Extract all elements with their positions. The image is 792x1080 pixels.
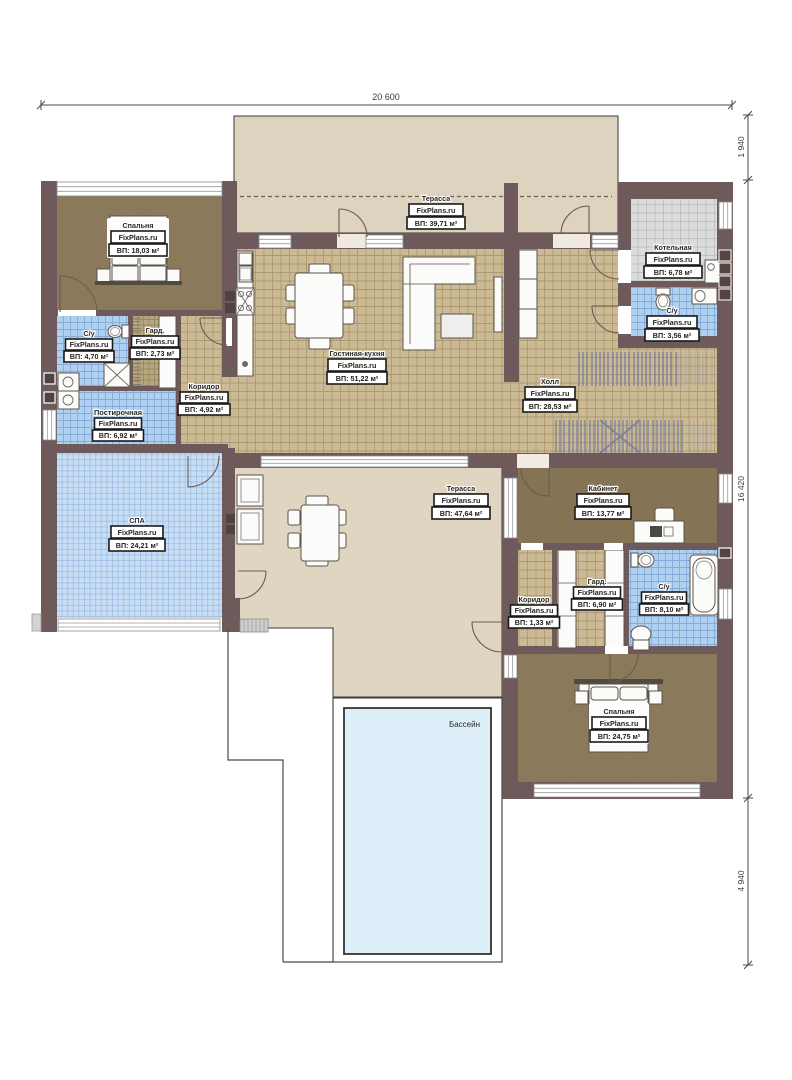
svg-text:С/у: С/у (658, 582, 669, 591)
svg-text:С/у: С/у (666, 306, 677, 315)
svg-text:Коридор: Коридор (189, 382, 221, 391)
svg-text:ВП: 13,77 м²: ВП: 13,77 м² (582, 509, 625, 518)
svg-text:4 940: 4 940 (736, 870, 746, 892)
svg-text:FixPlans.ru: FixPlans.ru (584, 496, 623, 505)
svg-text:Гард.: Гард. (146, 326, 165, 335)
svg-text:FixPlans.ru: FixPlans.ru (654, 255, 693, 264)
svg-text:ВП: 47,64 м²: ВП: 47,64 м² (440, 509, 483, 518)
svg-text:Терасса: Терасса (447, 484, 476, 493)
svg-text:FixPlans.ru: FixPlans.ru (185, 393, 224, 402)
svg-text:ВП: 24,75 м²: ВП: 24,75 м² (598, 732, 641, 741)
svg-text:Спальня: Спальня (603, 707, 634, 716)
svg-text:ВП: 6,78 м²: ВП: 6,78 м² (654, 268, 693, 277)
svg-text:ВП: 3,56 м²: ВП: 3,56 м² (653, 331, 692, 340)
svg-text:ВП: 24,21 м²: ВП: 24,21 м² (116, 541, 159, 550)
svg-text:1 940: 1 940 (736, 136, 746, 158)
svg-text:FixPlans.ru: FixPlans.ru (118, 528, 157, 537)
svg-text:16 420: 16 420 (736, 476, 746, 502)
svg-text:С/у: С/у (83, 329, 94, 338)
svg-text:Гард.: Гард. (588, 577, 607, 586)
svg-text:FixPlans.ru: FixPlans.ru (442, 496, 481, 505)
svg-text:Терасса: Терасса (422, 194, 451, 203)
svg-text:FixPlans.ru: FixPlans.ru (417, 206, 456, 215)
svg-text:ВП: 6,90 м²: ВП: 6,90 м² (578, 600, 617, 609)
svg-text:Постирочная: Постирочная (94, 408, 142, 417)
svg-text:FixPlans.ru: FixPlans.ru (338, 361, 377, 370)
svg-text:ВП: 6,92 м²: ВП: 6,92 м² (99, 431, 138, 440)
svg-text:FixPlans.ru: FixPlans.ru (119, 233, 158, 242)
svg-text:ВП: 18,03 м²: ВП: 18,03 м² (117, 246, 160, 255)
svg-text:ВП: 8,10 м²: ВП: 8,10 м² (645, 605, 684, 614)
svg-text:Котельная: Котельная (654, 243, 692, 252)
svg-text:FixPlans.ru: FixPlans.ru (645, 593, 684, 602)
svg-text:FixPlans.ru: FixPlans.ru (600, 719, 639, 728)
svg-text:FixPlans.ru: FixPlans.ru (70, 340, 109, 349)
svg-text:СПА: СПА (129, 516, 145, 525)
svg-text:FixPlans.ru: FixPlans.ru (515, 606, 554, 615)
svg-text:FixPlans.ru: FixPlans.ru (531, 389, 570, 398)
svg-text:FixPlans.ru: FixPlans.ru (578, 588, 617, 597)
svg-text:FixPlans.ru: FixPlans.ru (653, 318, 692, 327)
svg-text:ВП: 51,22 м²: ВП: 51,22 м² (336, 374, 379, 383)
svg-text:Бассейн: Бассейн (449, 720, 480, 729)
svg-text:Спальня: Спальня (122, 221, 153, 230)
svg-text:ВП: 28,53 м²: ВП: 28,53 м² (529, 402, 572, 411)
svg-text:Гостиная-кухня: Гостиная-кухня (329, 349, 384, 358)
svg-text:ВП: 2,73 м²: ВП: 2,73 м² (136, 349, 175, 358)
svg-text:FixPlans.ru: FixPlans.ru (136, 337, 175, 346)
svg-text:Кабинет: Кабинет (588, 484, 618, 493)
svg-text:ВП: 1,33 м²: ВП: 1,33 м² (515, 618, 554, 627)
svg-text:Холл: Холл (541, 377, 559, 386)
svg-text:FixPlans.ru: FixPlans.ru (99, 419, 138, 428)
svg-text:20 600: 20 600 (372, 92, 400, 102)
svg-text:ВП: 4,70 м²: ВП: 4,70 м² (70, 352, 109, 361)
svg-text:ВП: 39,71 м²: ВП: 39,71 м² (415, 219, 458, 228)
svg-text:Коридор: Коридор (519, 595, 551, 604)
svg-text:ВП: 4,92 м²: ВП: 4,92 м² (185, 405, 224, 414)
